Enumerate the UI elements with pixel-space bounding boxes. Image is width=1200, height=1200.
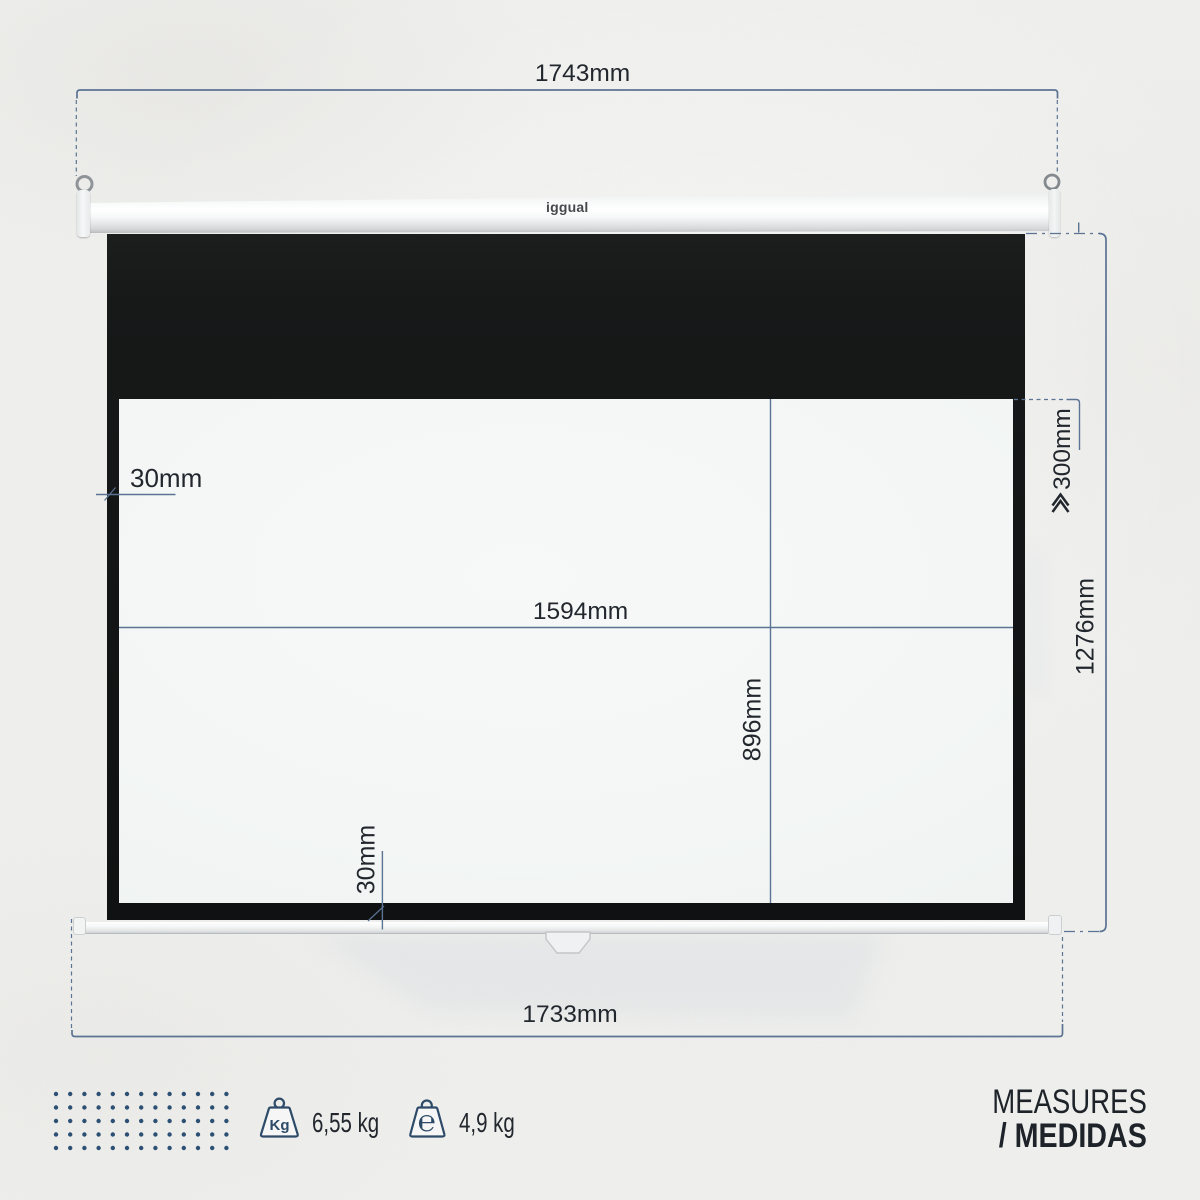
svg-text:℮: ℮ xyxy=(418,1105,436,1138)
svg-text:Kg: Kg xyxy=(270,1117,290,1134)
